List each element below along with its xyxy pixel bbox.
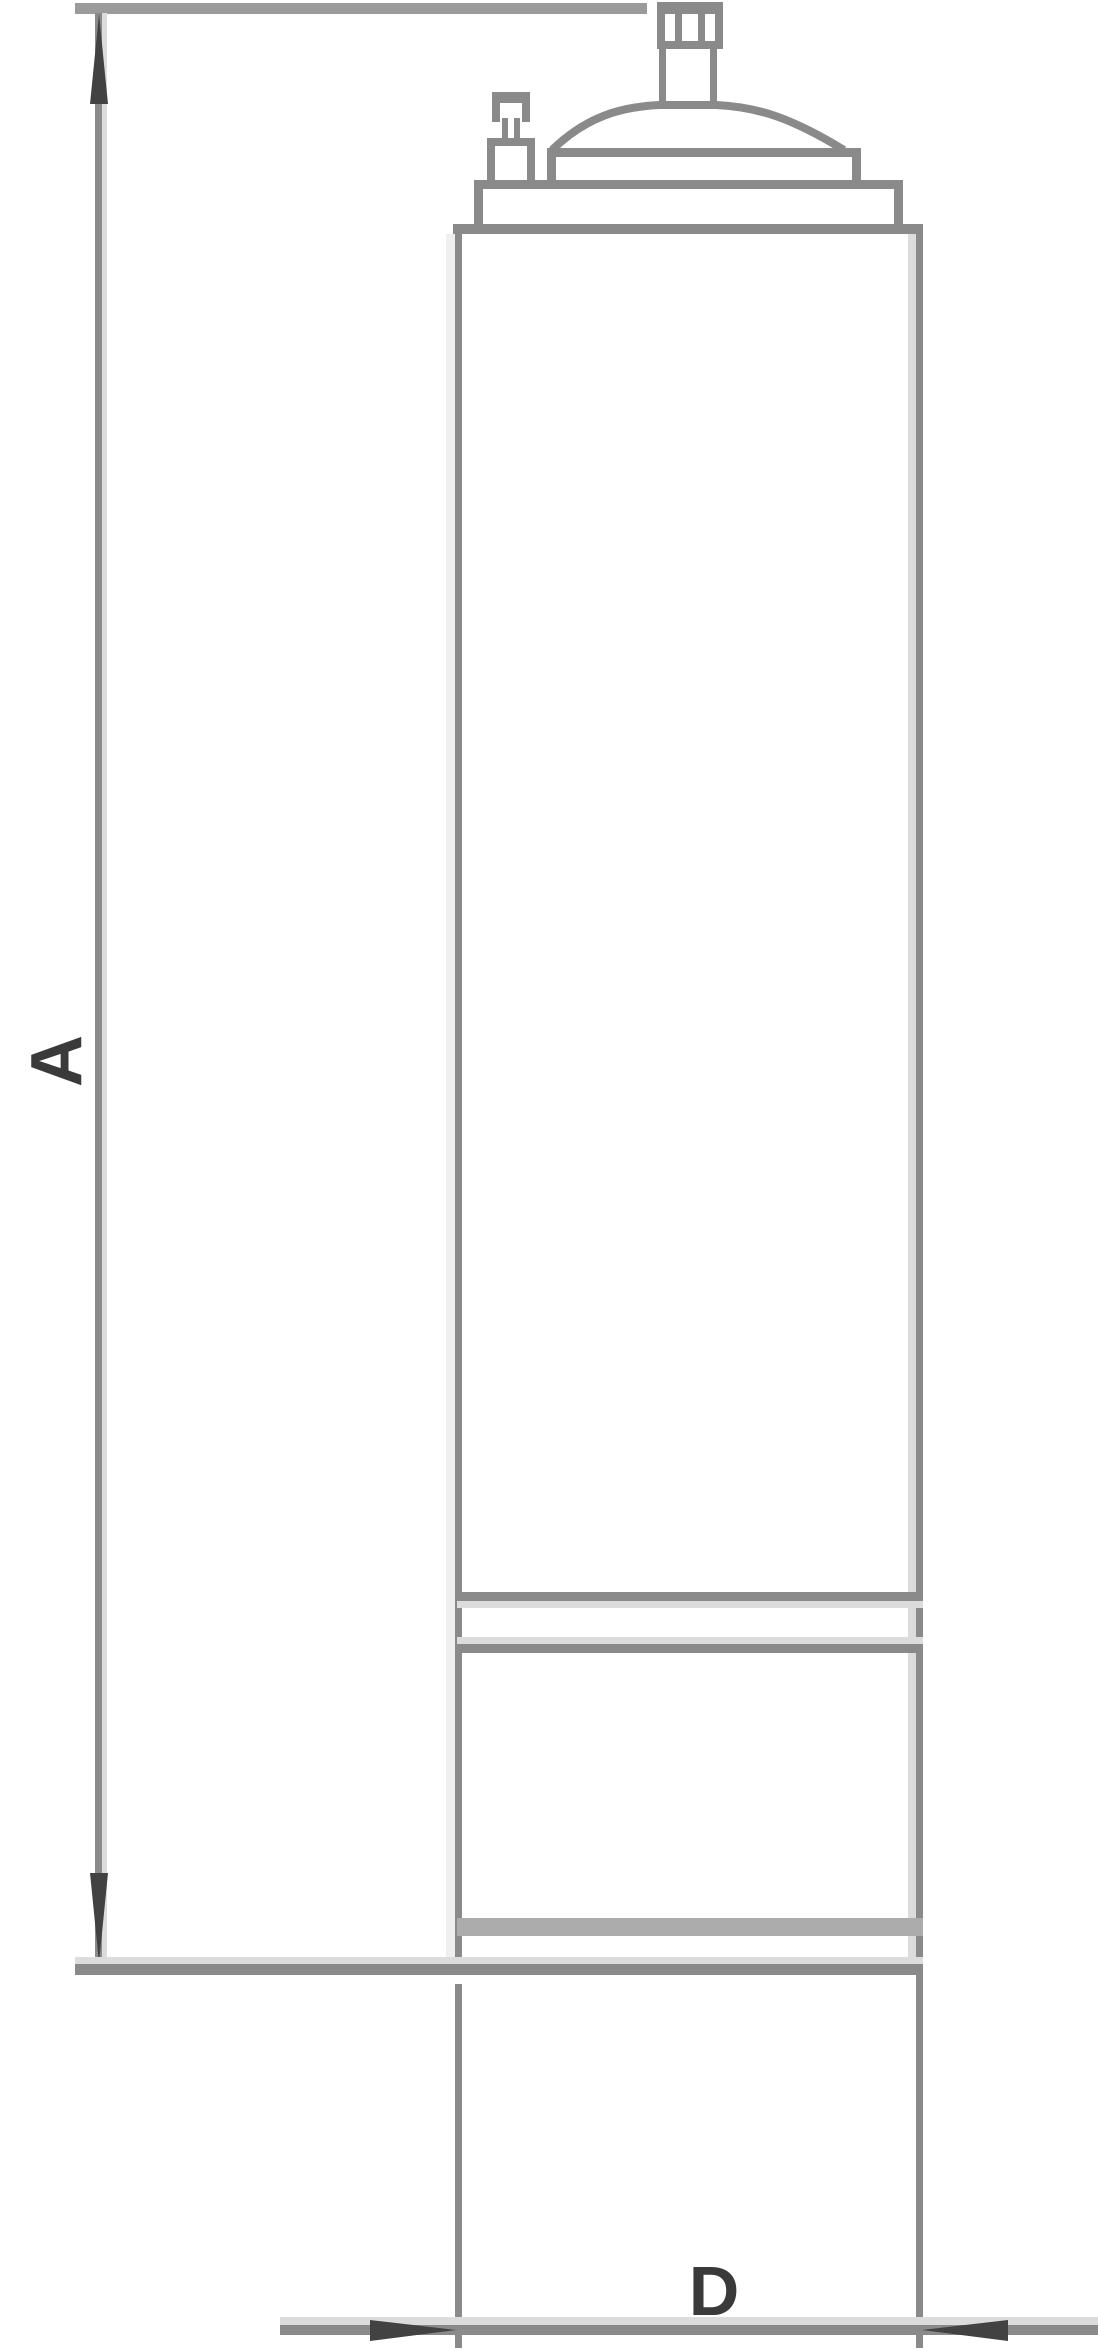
body-right-shadow: [908, 234, 916, 1957]
shaft-body-right: [710, 46, 717, 108]
dimension-A: [75, 3, 647, 1965]
connector-cap-right: [522, 92, 530, 122]
connector-cap-left: [492, 92, 500, 122]
extension-line-top: [75, 3, 647, 14]
body-left-edge: [455, 234, 462, 1964]
body-bottom-shadow: [75, 1957, 923, 1964]
dome-cap: [474, 105, 903, 234]
body-right-edge: [916, 234, 923, 1975]
shaft-tip-left: [657, 2, 665, 43]
dimension-line-a: [95, 13, 102, 1965]
dimension-label-d: D: [677, 2256, 751, 2326]
lower-band: [457, 1918, 923, 1936]
dimension-line-a-shadow: [102, 13, 107, 1965]
drawing-canvas: A D: [0, 0, 1098, 2351]
extension-line-right: [916, 1975, 923, 2348]
extension-line-left: [455, 1984, 462, 2348]
cable-connector: [487, 92, 535, 184]
connector-base-left: [487, 138, 495, 184]
shaft-neck-left: [675, 14, 682, 44]
shaft-neck-right: [698, 14, 705, 44]
body-bottom-edge-extended: [75, 1964, 923, 1975]
coupling-band-line-1: [457, 1592, 923, 1601]
coupling-band-line-2: [457, 1644, 923, 1653]
shaft-body-left: [659, 46, 666, 108]
flange-plate-top: [474, 180, 903, 189]
shaft-tip-top: [657, 2, 723, 14]
coupling-band-line-1-shadow: [457, 1601, 923, 1608]
dome-arc: [552, 105, 844, 150]
dome-base-plate-top: [547, 148, 861, 157]
connector-base-right: [527, 138, 535, 184]
pump-body: [75, 224, 923, 1975]
shaft-tip-right: [715, 2, 723, 43]
coupling-band-line-2-shadow: [457, 1637, 923, 1644]
body-top-edge: [453, 224, 923, 234]
shaft-end: [657, 2, 723, 108]
dimension-label-a: A: [22, 1024, 92, 1098]
body-left-shadow: [446, 234, 455, 1964]
